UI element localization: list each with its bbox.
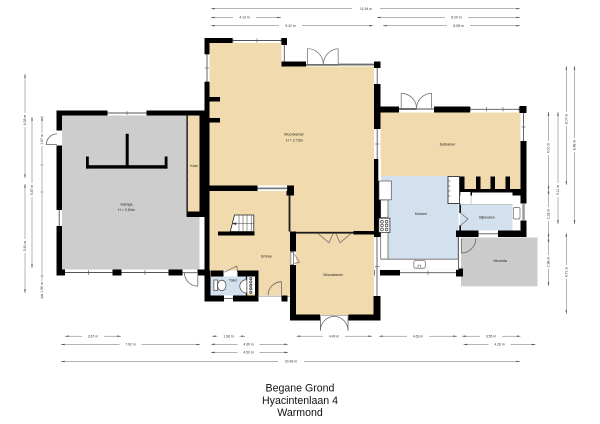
- svg-text:4.28 m: 4.28 m: [494, 343, 505, 347]
- svg-text:H = 2.73m: H = 2.73m: [286, 139, 303, 143]
- svg-text:Begane Grond: Begane Grond: [266, 383, 335, 395]
- svg-text:Woonkamer: Woonkamer: [323, 273, 344, 277]
- svg-text:9.42 m: 9.42 m: [285, 24, 296, 28]
- svg-text:4.13 m: 4.13 m: [239, 16, 250, 20]
- svg-text:8.29 m: 8.29 m: [451, 16, 462, 20]
- svg-text:1.96 m: 1.96 m: [40, 282, 44, 293]
- svg-text:4.00 m: 4.00 m: [547, 143, 551, 154]
- svg-text:11.94 m: 11.94 m: [360, 7, 372, 11]
- svg-text:4.63 m: 4.63 m: [413, 334, 424, 338]
- svg-text:1.98 m: 1.98 m: [223, 334, 234, 338]
- svg-text:Garage: Garage: [120, 203, 132, 207]
- svg-text:H = 2.54m: H = 2.54m: [118, 208, 135, 212]
- svg-text:4.49 m: 4.49 m: [329, 334, 340, 338]
- svg-text:5.87 m: 5.87 m: [30, 185, 34, 196]
- svg-text:6.28 m: 6.28 m: [23, 115, 27, 126]
- svg-text:2.98 m: 2.98 m: [547, 257, 551, 268]
- svg-text:Warmond: Warmond: [277, 407, 323, 419]
- svg-text:20.49 m: 20.49 m: [285, 360, 297, 364]
- svg-text:Veranda: Veranda: [493, 259, 508, 263]
- svg-text:Toilet: Toilet: [229, 279, 237, 283]
- svg-text:Kast: Kast: [190, 164, 197, 168]
- svg-text:4.39 m: 4.39 m: [243, 343, 254, 347]
- svg-text:Bijkeuken: Bijkeuken: [479, 215, 495, 219]
- svg-text:2.18 m: 2.18 m: [547, 209, 551, 220]
- svg-text:Entree: Entree: [261, 254, 272, 258]
- svg-text:4.50 m: 4.50 m: [243, 351, 254, 355]
- svg-text:1.67 m: 1.67 m: [40, 134, 44, 145]
- svg-text:5.81 m: 5.81 m: [23, 241, 27, 252]
- svg-text:Eetkamer: Eetkamer: [440, 143, 457, 147]
- svg-text:3.67 m: 3.67 m: [88, 334, 99, 338]
- svg-text:Keuken: Keuken: [415, 212, 428, 216]
- svg-text:Hyacintenlaan 4: Hyacintenlaan 4: [262, 395, 338, 407]
- svg-text:Woonkamer: Woonkamer: [284, 132, 305, 136]
- svg-text:7.92 m: 7.92 m: [125, 343, 136, 347]
- svg-text:4.71 m: 4.71 m: [565, 267, 569, 278]
- svg-text:8.07 m: 8.07 m: [565, 114, 569, 125]
- svg-text:3.55 m: 3.55 m: [486, 334, 497, 338]
- svg-text:8.48 m: 8.48 m: [573, 140, 577, 151]
- svg-text:8.08 m: 8.08 m: [453, 24, 464, 28]
- svg-text:5.11 m: 5.11 m: [556, 185, 560, 195]
